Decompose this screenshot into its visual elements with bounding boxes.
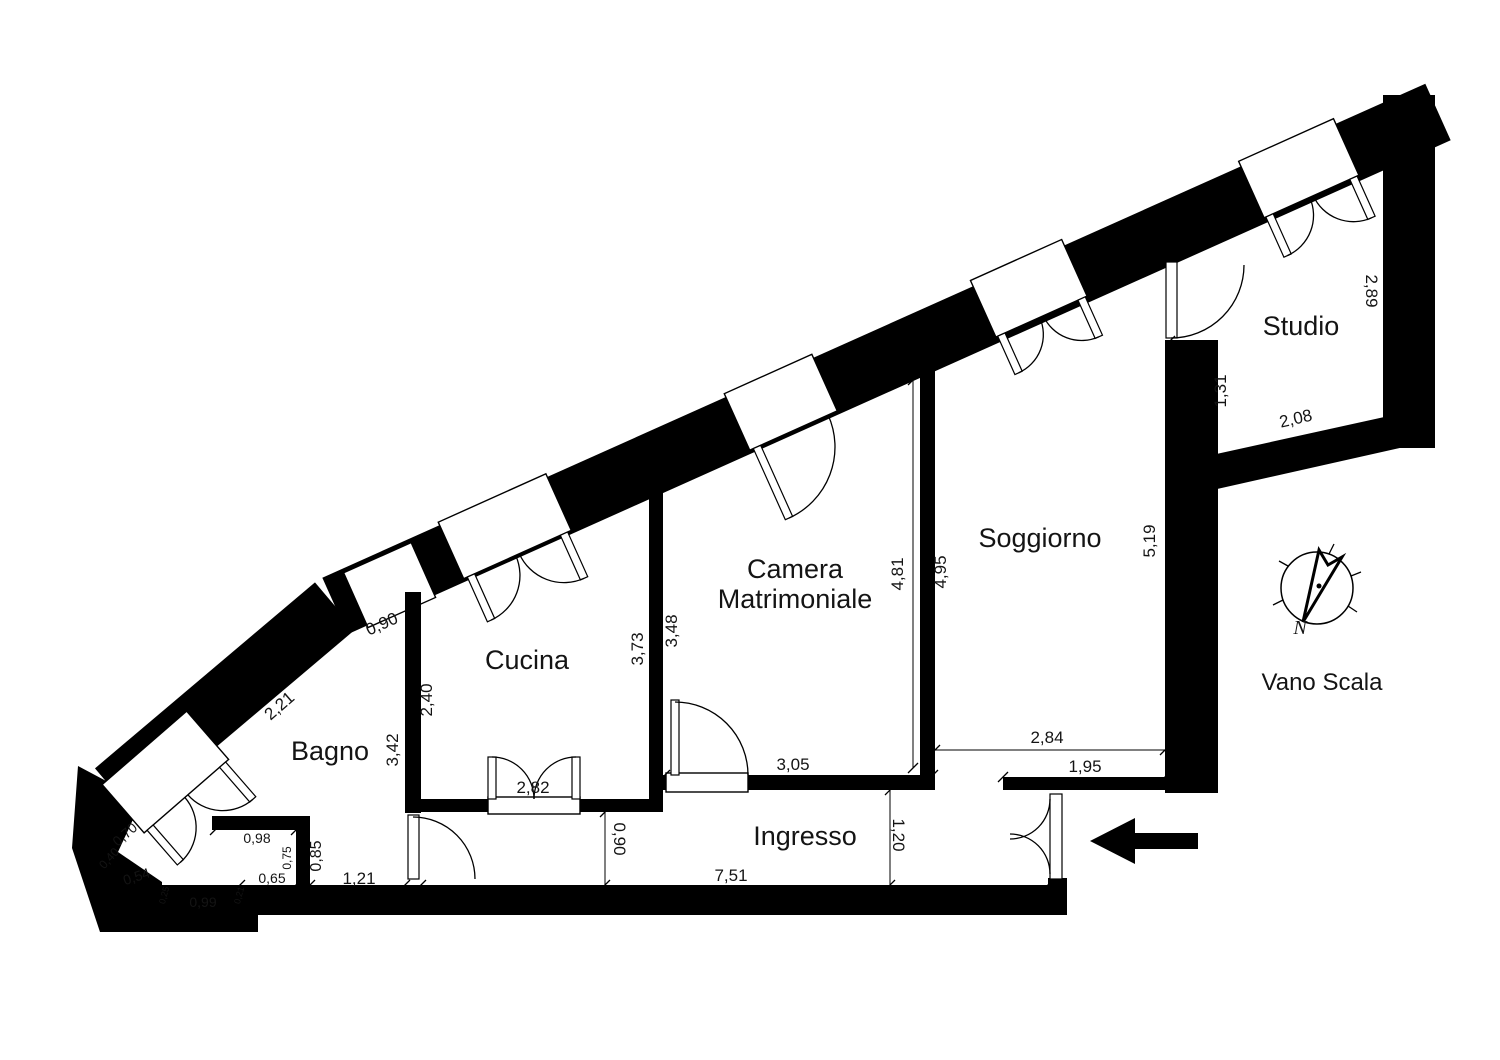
dim-soggiorno-wall: 1,95 — [1068, 757, 1101, 776]
dim-ingresso-left: 0,90 — [610, 822, 629, 855]
dim-cucina-door: 2,82 — [516, 778, 549, 797]
dim-camera-bottom: 3,05 — [776, 755, 809, 774]
dim-ingresso-bottom: 7,51 — [714, 866, 747, 885]
studio-door — [1166, 262, 1244, 338]
dim-bagno-right: 3,42 — [383, 733, 402, 766]
dim-soggiorno-bottom: 2,84 — [1030, 728, 1063, 747]
dim-niche-bottom: 0,65 — [258, 870, 285, 886]
dim-cucina-left: 2,40 — [417, 683, 436, 716]
room-label-ingresso: Ingresso — [753, 821, 857, 851]
dim-bagno-1-21: 1,21 — [342, 869, 375, 888]
compass-icon: N — [1273, 544, 1361, 639]
dim-studio-bottom: 2,08 — [1278, 406, 1315, 432]
dim-niche-right-inner: 0,75 — [280, 846, 294, 870]
room-label-studio: Studio — [1263, 311, 1340, 341]
dim-camera-left: 3,48 — [662, 614, 681, 647]
bagno-door — [408, 815, 475, 879]
room-label-vano-scala: Vano Scala — [1262, 669, 1384, 696]
dim-niche-top: 0,98 — [243, 830, 270, 846]
dim-niche-right-outer: 0,85 — [308, 840, 325, 871]
dim-bagno-bottom: 0,99 — [189, 894, 216, 910]
floor-plan-svg: Bagno Cucina Camera Matrimoniale Soggior… — [0, 0, 1500, 1060]
dim-studio-left: 1,31 — [1211, 374, 1230, 407]
dim-soggiorno-right: 5,19 — [1140, 524, 1159, 557]
compass-north-label: N — [1292, 617, 1308, 639]
room-label-soggiorno: Soggiorno — [978, 523, 1101, 553]
room-label-camera-line2: Matrimoniale — [718, 584, 873, 614]
dim-camera-right: 4,81 — [888, 557, 907, 590]
room-label-camera-line1: Camera — [747, 554, 844, 584]
dim-camera-right-outer: 4,95 — [931, 555, 950, 588]
dim-studio-right: 2,89 — [1362, 274, 1381, 307]
dim-cucina-right: 3,73 — [628, 632, 647, 665]
room-label-bagno: Bagno — [291, 736, 369, 766]
entrance-arrow-icon — [1090, 818, 1198, 864]
bagno-french-window — [102, 711, 259, 867]
room-label-cucina: Cucina — [485, 645, 570, 675]
entrance-door — [1010, 794, 1062, 879]
floor-plan-page: Bagno Cucina Camera Matrimoniale Soggior… — [0, 0, 1500, 1060]
dim-ingresso-right: 1,20 — [889, 818, 908, 851]
camera-door — [666, 700, 748, 792]
